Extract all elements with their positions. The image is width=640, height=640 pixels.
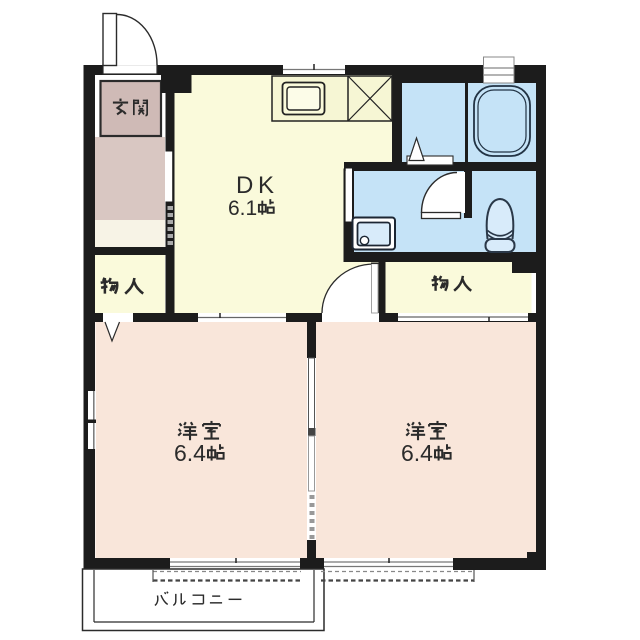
svg-text:6.4: 6.4 [174,440,206,466]
svg-text:6.1: 6.1 [228,197,257,220]
svg-text:K: K [258,172,274,199]
svg-text:D: D [236,172,253,199]
svg-text:6.4: 6.4 [401,440,433,466]
